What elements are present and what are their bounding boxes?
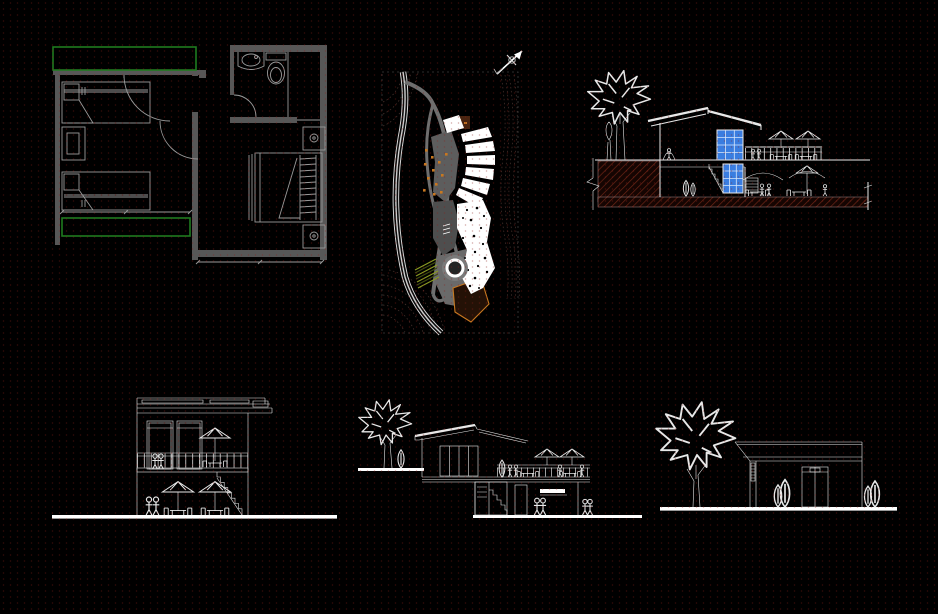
upper-ground-line	[358, 468, 424, 471]
building	[735, 442, 862, 507]
entry-door	[802, 467, 828, 507]
hatch-band-bottom	[62, 218, 190, 236]
section-tree	[588, 71, 651, 160]
cad-sheet	[0, 0, 938, 614]
circular-tank	[442, 255, 468, 281]
upper-body	[422, 438, 590, 482]
wall-texture	[751, 463, 755, 481]
roof	[415, 425, 528, 443]
deck-railing	[497, 449, 590, 477]
stairs	[709, 164, 723, 193]
stairs	[217, 472, 242, 515]
lower-figures	[534, 498, 593, 515]
ground-line	[52, 515, 337, 519]
twin-bed-1	[62, 82, 150, 123]
glazing-lower	[723, 164, 743, 193]
section-panel	[585, 70, 910, 220]
nightstand	[62, 127, 85, 160]
hatch-band-top	[53, 47, 196, 70]
rear-elevation-panel	[50, 392, 345, 524]
umbrellas-upper	[751, 131, 820, 160]
section-building	[648, 108, 761, 197]
lower-level	[475, 482, 578, 515]
north-arrow-icon	[494, 51, 522, 74]
sink	[238, 52, 264, 70]
shutter-box	[746, 178, 758, 193]
tree	[656, 402, 735, 507]
twin-bed-2	[62, 172, 150, 210]
double-bed	[249, 153, 322, 222]
toilet	[266, 53, 286, 84]
shrubs	[774, 480, 879, 507]
side-elevation-panel	[356, 395, 646, 520]
upper-figures	[152, 428, 230, 469]
site-plan-panel	[375, 42, 565, 342]
glazing-upper	[717, 130, 743, 160]
front-elevation-panel	[655, 395, 935, 520]
ground-line	[660, 507, 897, 511]
lower-ground-line	[473, 515, 642, 518]
roof	[137, 398, 272, 413]
tree	[359, 400, 412, 468]
floor-plan-panel	[48, 40, 348, 270]
person-upper-room	[667, 149, 671, 160]
signboard	[540, 489, 567, 495]
